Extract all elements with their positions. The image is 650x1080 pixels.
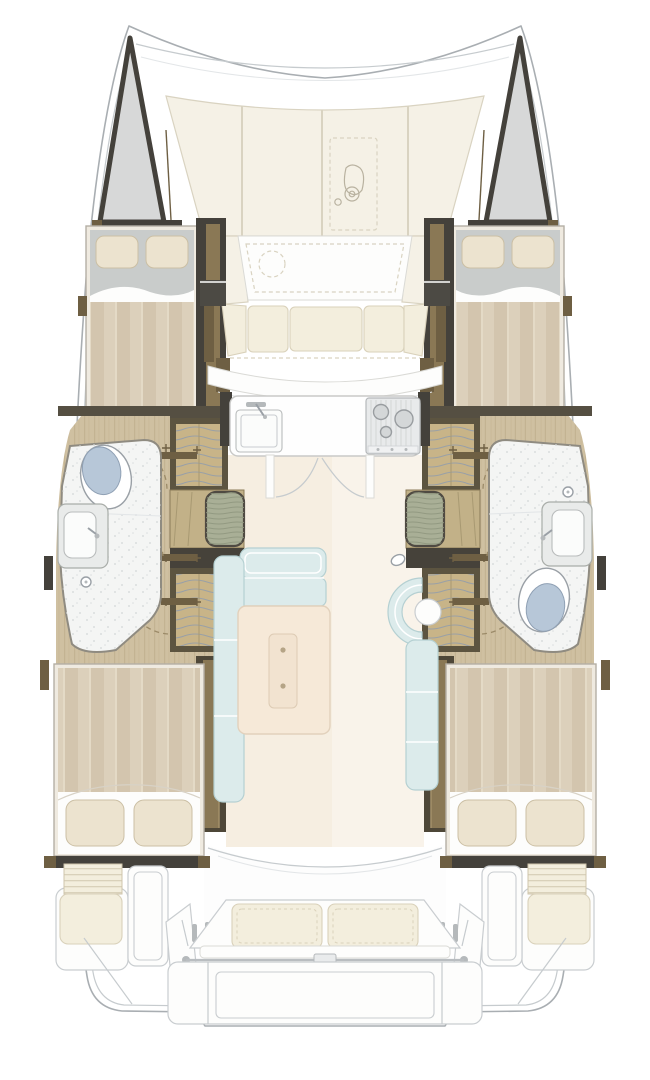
bench-cushion — [364, 306, 404, 352]
pillow — [66, 800, 124, 846]
side-bench — [406, 640, 438, 790]
forward-cockpit-floor — [238, 236, 412, 300]
hull-window — [78, 296, 87, 316]
starboard-head — [489, 440, 592, 652]
floorplan-canvas — [0, 0, 650, 1080]
forward-cabin-bed — [86, 226, 198, 408]
bath-sink — [552, 510, 584, 556]
bench-cushion — [248, 306, 288, 352]
aft-cockpit — [186, 900, 464, 964]
pillow — [96, 236, 138, 268]
sofa-seat — [240, 578, 326, 606]
cockpit-bench-cushion — [328, 904, 418, 948]
pillow — [134, 800, 192, 846]
bench-cushion — [290, 307, 362, 351]
pillow — [146, 236, 188, 268]
hull-window — [44, 556, 53, 590]
stool — [415, 599, 441, 625]
companionway-steps — [64, 864, 122, 894]
helm-seat — [60, 894, 122, 944]
hull-window — [40, 660, 49, 690]
cockpit-bench-cushion — [232, 904, 322, 948]
transom-platform — [168, 962, 482, 1024]
stove-icon — [366, 398, 420, 454]
bath-sink — [64, 512, 96, 558]
catamaran-floorplan — [0, 0, 650, 1080]
port-head — [58, 440, 161, 652]
bench-backrest — [190, 900, 460, 948]
aft-cabin-bed — [54, 664, 204, 856]
dining-table — [238, 606, 330, 734]
galley-sink — [236, 410, 282, 452]
